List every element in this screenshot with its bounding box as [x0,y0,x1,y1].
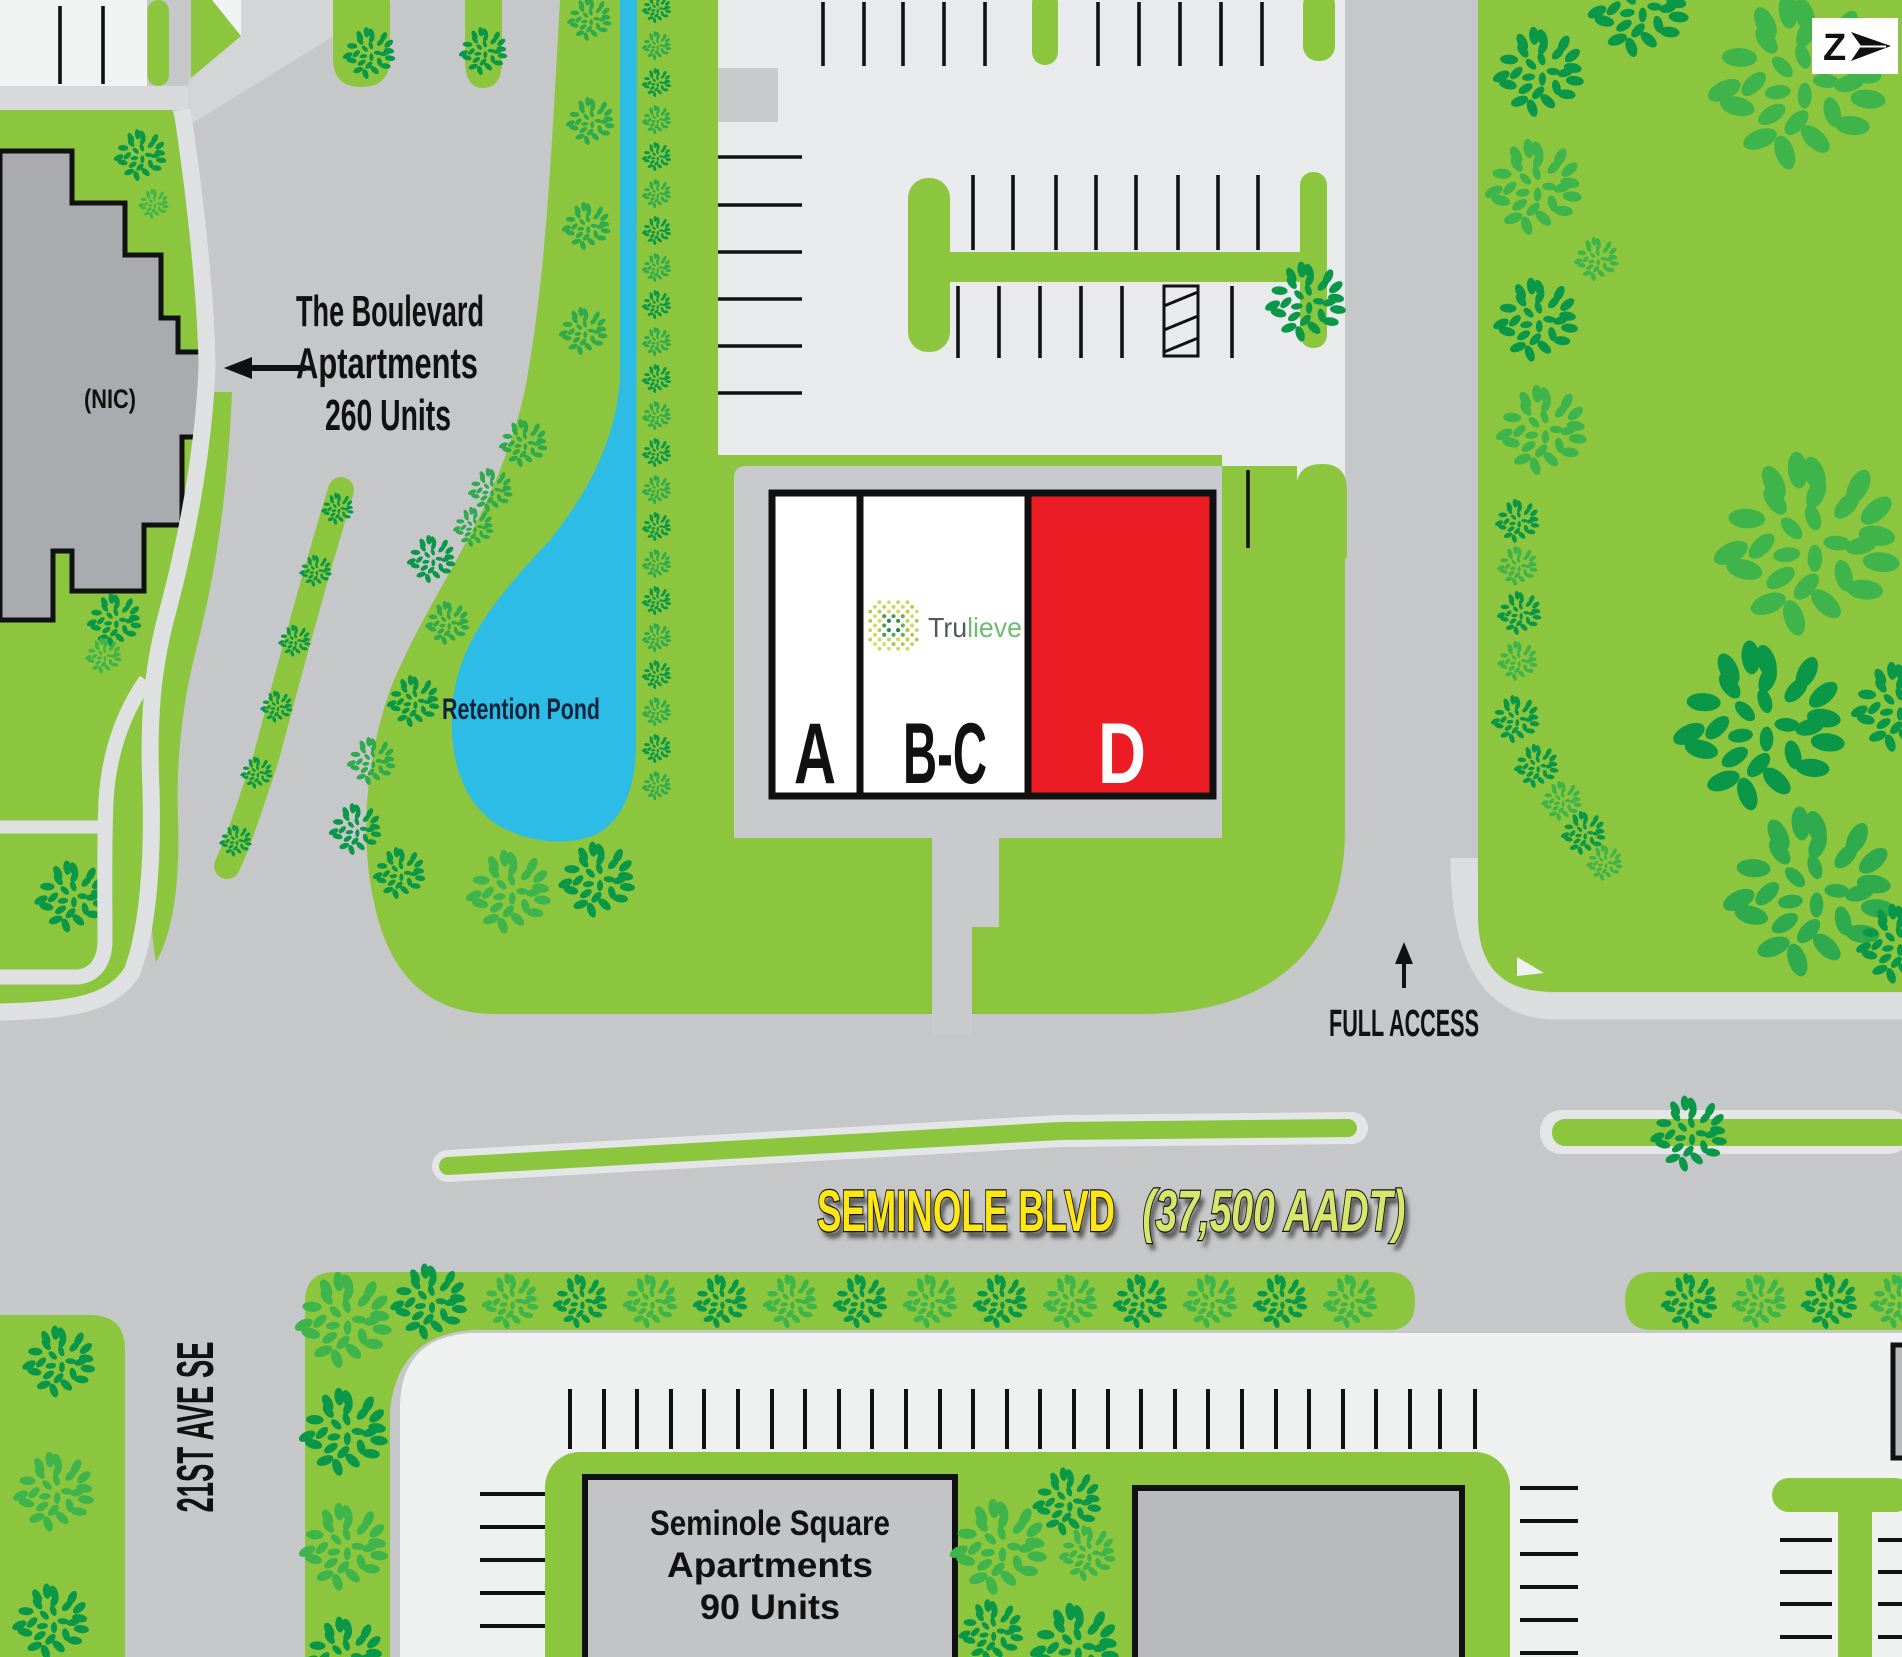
svg-text:B-C: B-C [903,706,987,802]
svg-text:260 Units: 260 Units [325,391,451,440]
svg-text:90 Units: 90 Units [700,1588,840,1627]
svg-text:Z: Z [1823,27,1846,69]
svg-text:A: A [794,706,836,802]
svg-text:Apartments: Apartments [667,1546,873,1585]
svg-text:SEMINOLE BLVD: SEMINOLE BLVD [817,1179,1115,1244]
svg-text:Trulieve: Trulieve [928,612,1022,643]
svg-text:Retention Pond: Retention Pond [442,693,600,726]
svg-text:(NIC): (NIC) [84,384,136,414]
svg-text:The Boulevard: The Boulevard [296,287,484,336]
svg-text:21ST AVE SE: 21ST AVE SE [167,1342,225,1513]
svg-text:(37,500 AADT): (37,500 AADT) [1143,1179,1406,1244]
svg-text:D: D [1098,706,1146,802]
svg-text:FULL ACCESS: FULL ACCESS [1329,1003,1479,1045]
svg-text:Seminole Square: Seminole Square [650,1504,890,1543]
svg-text:Aptartments: Aptartments [296,339,478,388]
